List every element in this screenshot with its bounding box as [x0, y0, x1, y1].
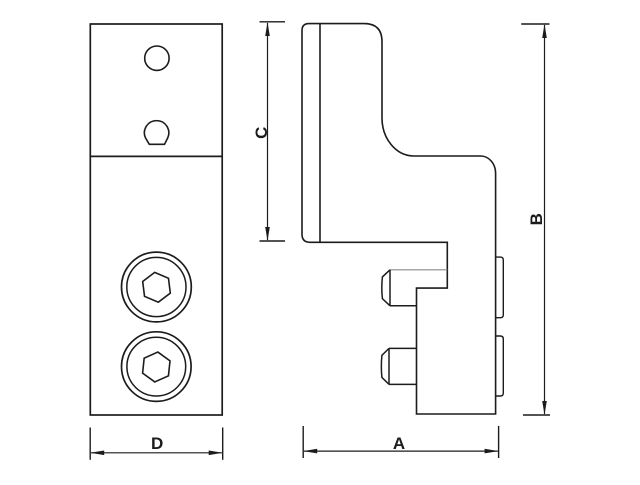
- svg-text:A: A: [393, 434, 405, 453]
- svg-text:D: D: [151, 434, 163, 453]
- svg-text:B: B: [527, 213, 546, 225]
- svg-text:C: C: [252, 127, 271, 139]
